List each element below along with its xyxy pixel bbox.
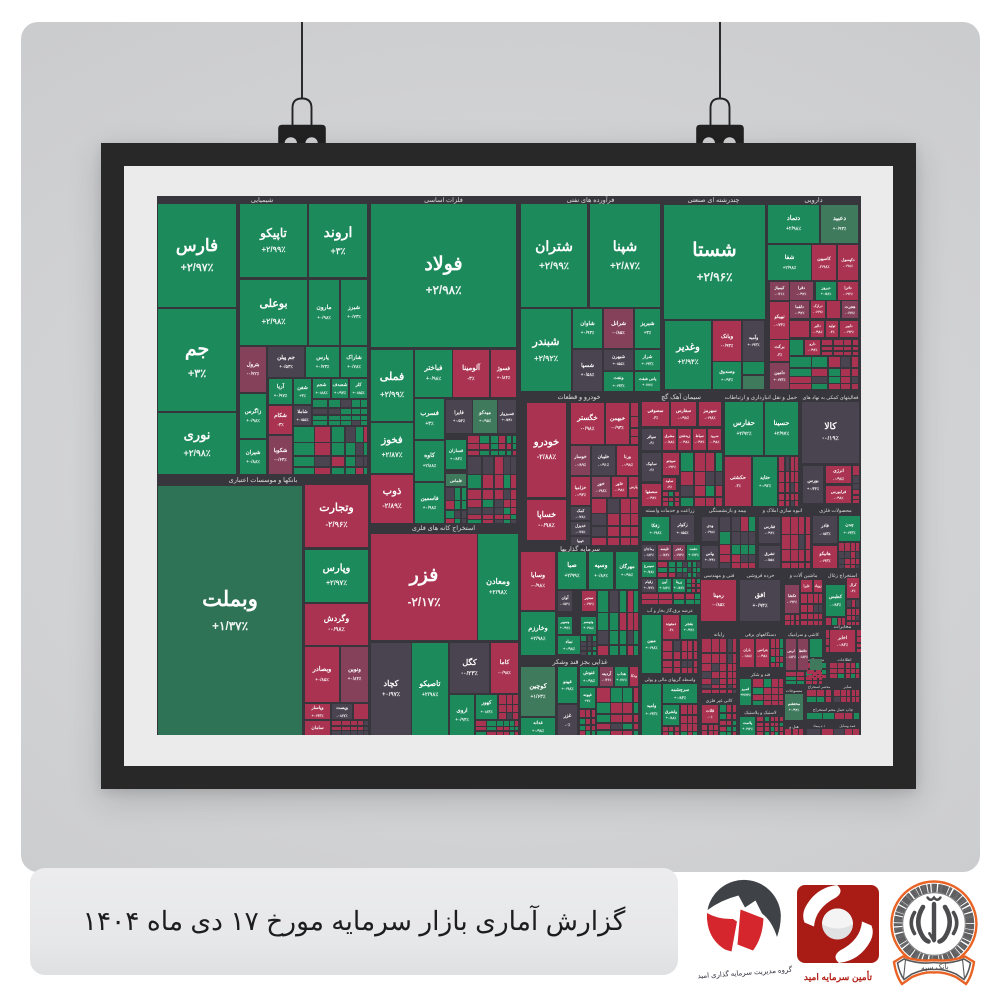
- svg-text:گروه مدیریت سرمایه گذاری امید: گروه مدیریت سرمایه گذاری امید: [697, 965, 793, 981]
- svg-text:تأمین سرمایه امید: تأمین سرمایه امید: [804, 970, 873, 983]
- svg-text:بانک سپه: بانک سپه: [921, 962, 949, 972]
